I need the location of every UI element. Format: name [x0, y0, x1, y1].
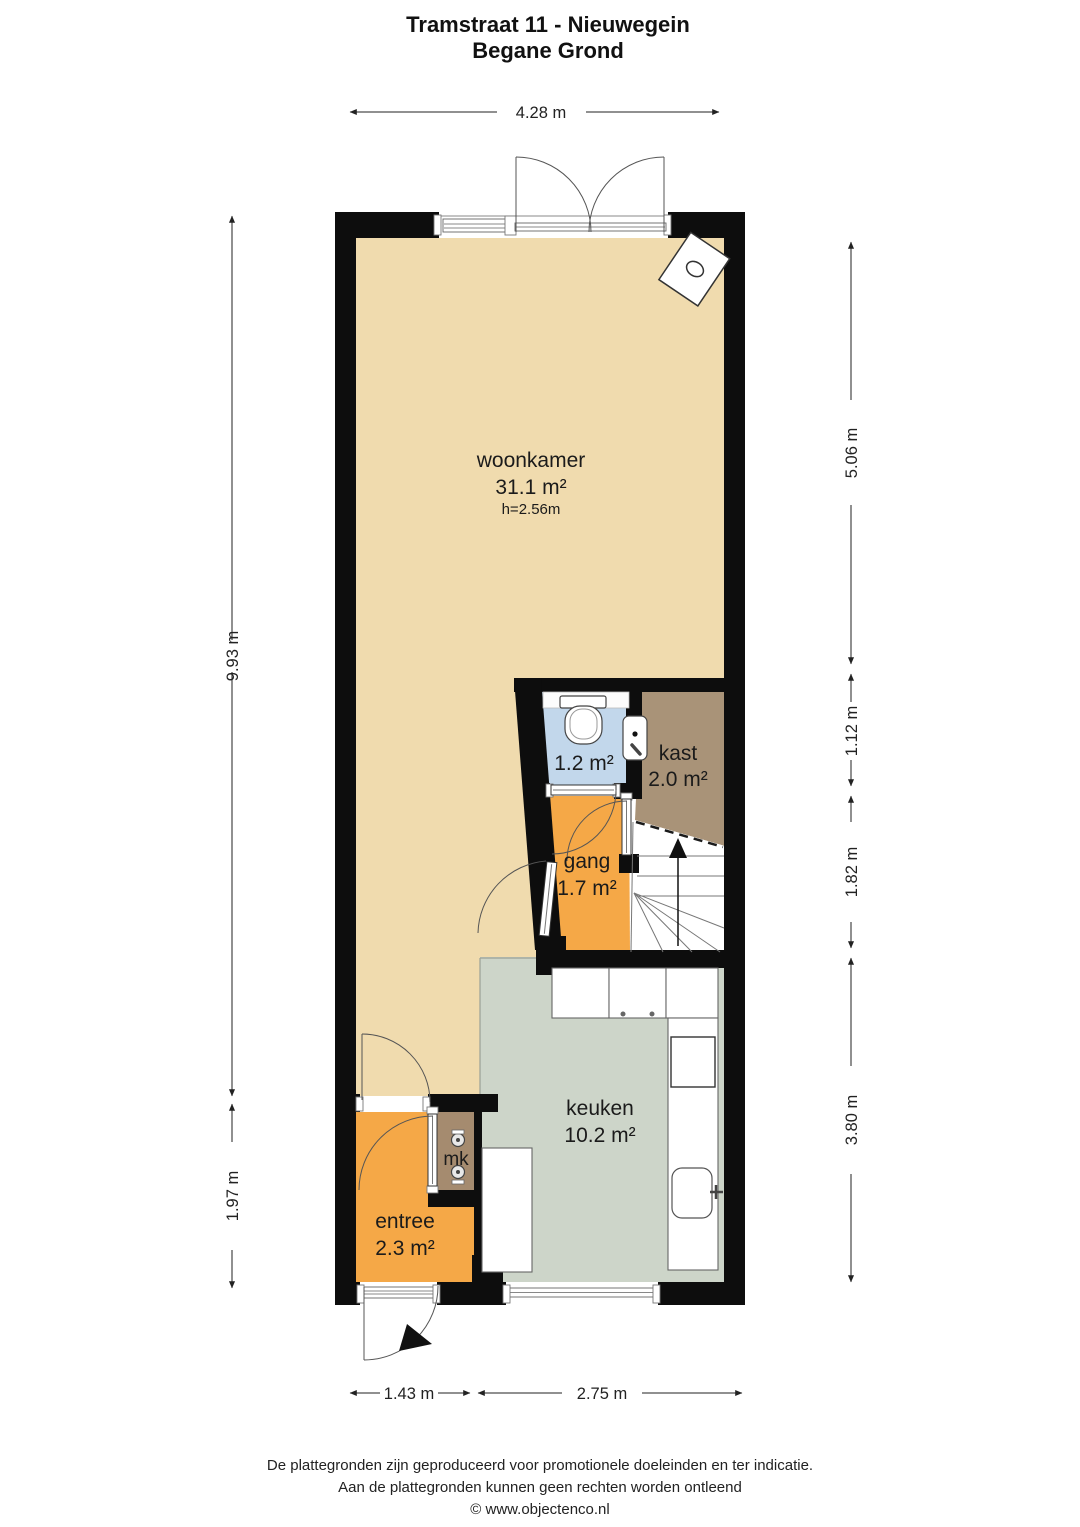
- kitchen-counter: [609, 968, 666, 1018]
- woonkamer-area: 31.1 m²: [495, 476, 566, 499]
- counter-handle: [650, 1012, 655, 1017]
- title-line1: Tramstraat 11 - Nieuwegein: [406, 12, 690, 37]
- dimension-bottom-left: 1.43 m: [350, 1385, 470, 1403]
- dim-left-upper: 9.93 m: [224, 631, 242, 681]
- cooktop-icon: [671, 1037, 715, 1087]
- title-line2: Begane Grond: [472, 38, 624, 63]
- dim-bottom-left: 1.43 m: [384, 1385, 434, 1403]
- woonkamer-height: h=2.56m: [502, 501, 561, 518]
- entry-arrow-icon: [399, 1324, 432, 1351]
- dimension-right-4: 3.80 m: [843, 958, 861, 1282]
- dim-right-4: 3.80 m: [843, 1095, 861, 1145]
- gang-area: 1.7 m²: [557, 877, 617, 900]
- dimension-left-lower: 1.97 m: [224, 1104, 242, 1288]
- dimension-right-1: 5.06 m: [843, 242, 861, 664]
- gang-label: gang: [564, 850, 611, 873]
- toilet-icon: [560, 696, 606, 744]
- dimension-right-2: 1.12 m: [843, 674, 861, 786]
- dimension-right-3: 1.82 m: [843, 796, 861, 948]
- footer-disclaimer: De plattegronden zijn geproduceerd voor …: [267, 1457, 813, 1518]
- dim-right-3: 1.82 m: [843, 847, 861, 897]
- kitchen-counter: [552, 968, 609, 1018]
- front-door: [357, 1282, 440, 1360]
- footer-line2: Aan de plattegronden kunnen geen rechten…: [338, 1479, 742, 1496]
- floorplan-page: Tramstraat 11 - Nieuwegein Begane Grond: [0, 0, 1080, 1527]
- fountain-sink-icon: [623, 716, 647, 760]
- top-opening: [434, 157, 671, 238]
- toilet-area: 1.2 m²: [554, 752, 614, 775]
- window-keuken: [503, 1282, 660, 1305]
- kitchen-counter: [666, 968, 718, 1018]
- kast-label: kast: [659, 742, 698, 765]
- entree-area: 2.3 m²: [375, 1237, 435, 1260]
- plan-title: Tramstraat 11 - Nieuwegein Begane Grond: [406, 12, 690, 63]
- kast-area: 2.0 m²: [648, 768, 708, 791]
- dim-left-lower: 1.97 m: [224, 1171, 242, 1221]
- footer-line1: De plattegronden zijn geproduceerd voor …: [267, 1457, 813, 1474]
- kitchen-counter: [482, 1148, 532, 1272]
- meterkast-label: mk: [443, 1149, 469, 1170]
- dim-right-2: 1.12 m: [843, 706, 861, 756]
- dim-top-width: 4.28 m: [516, 104, 566, 122]
- dim-bottom-right: 2.75 m: [577, 1385, 627, 1403]
- keuken-area: 10.2 m²: [564, 1124, 635, 1147]
- keuken-label: keuken: [566, 1097, 634, 1120]
- window-top: [443, 219, 506, 232]
- dimension-left-upper: 9.93 m: [224, 216, 242, 1096]
- dimension-bottom-right: 2.75 m: [478, 1385, 742, 1403]
- dimension-top: 4.28 m: [350, 104, 719, 122]
- counter-handle: [621, 1012, 626, 1017]
- entree-label: entree: [375, 1210, 435, 1233]
- dim-right-1: 5.06 m: [843, 428, 861, 478]
- footer-copyright: © www.objectenco.nl: [470, 1501, 609, 1518]
- gang-floor: [550, 796, 630, 953]
- woonkamer-label: woonkamer: [476, 449, 586, 472]
